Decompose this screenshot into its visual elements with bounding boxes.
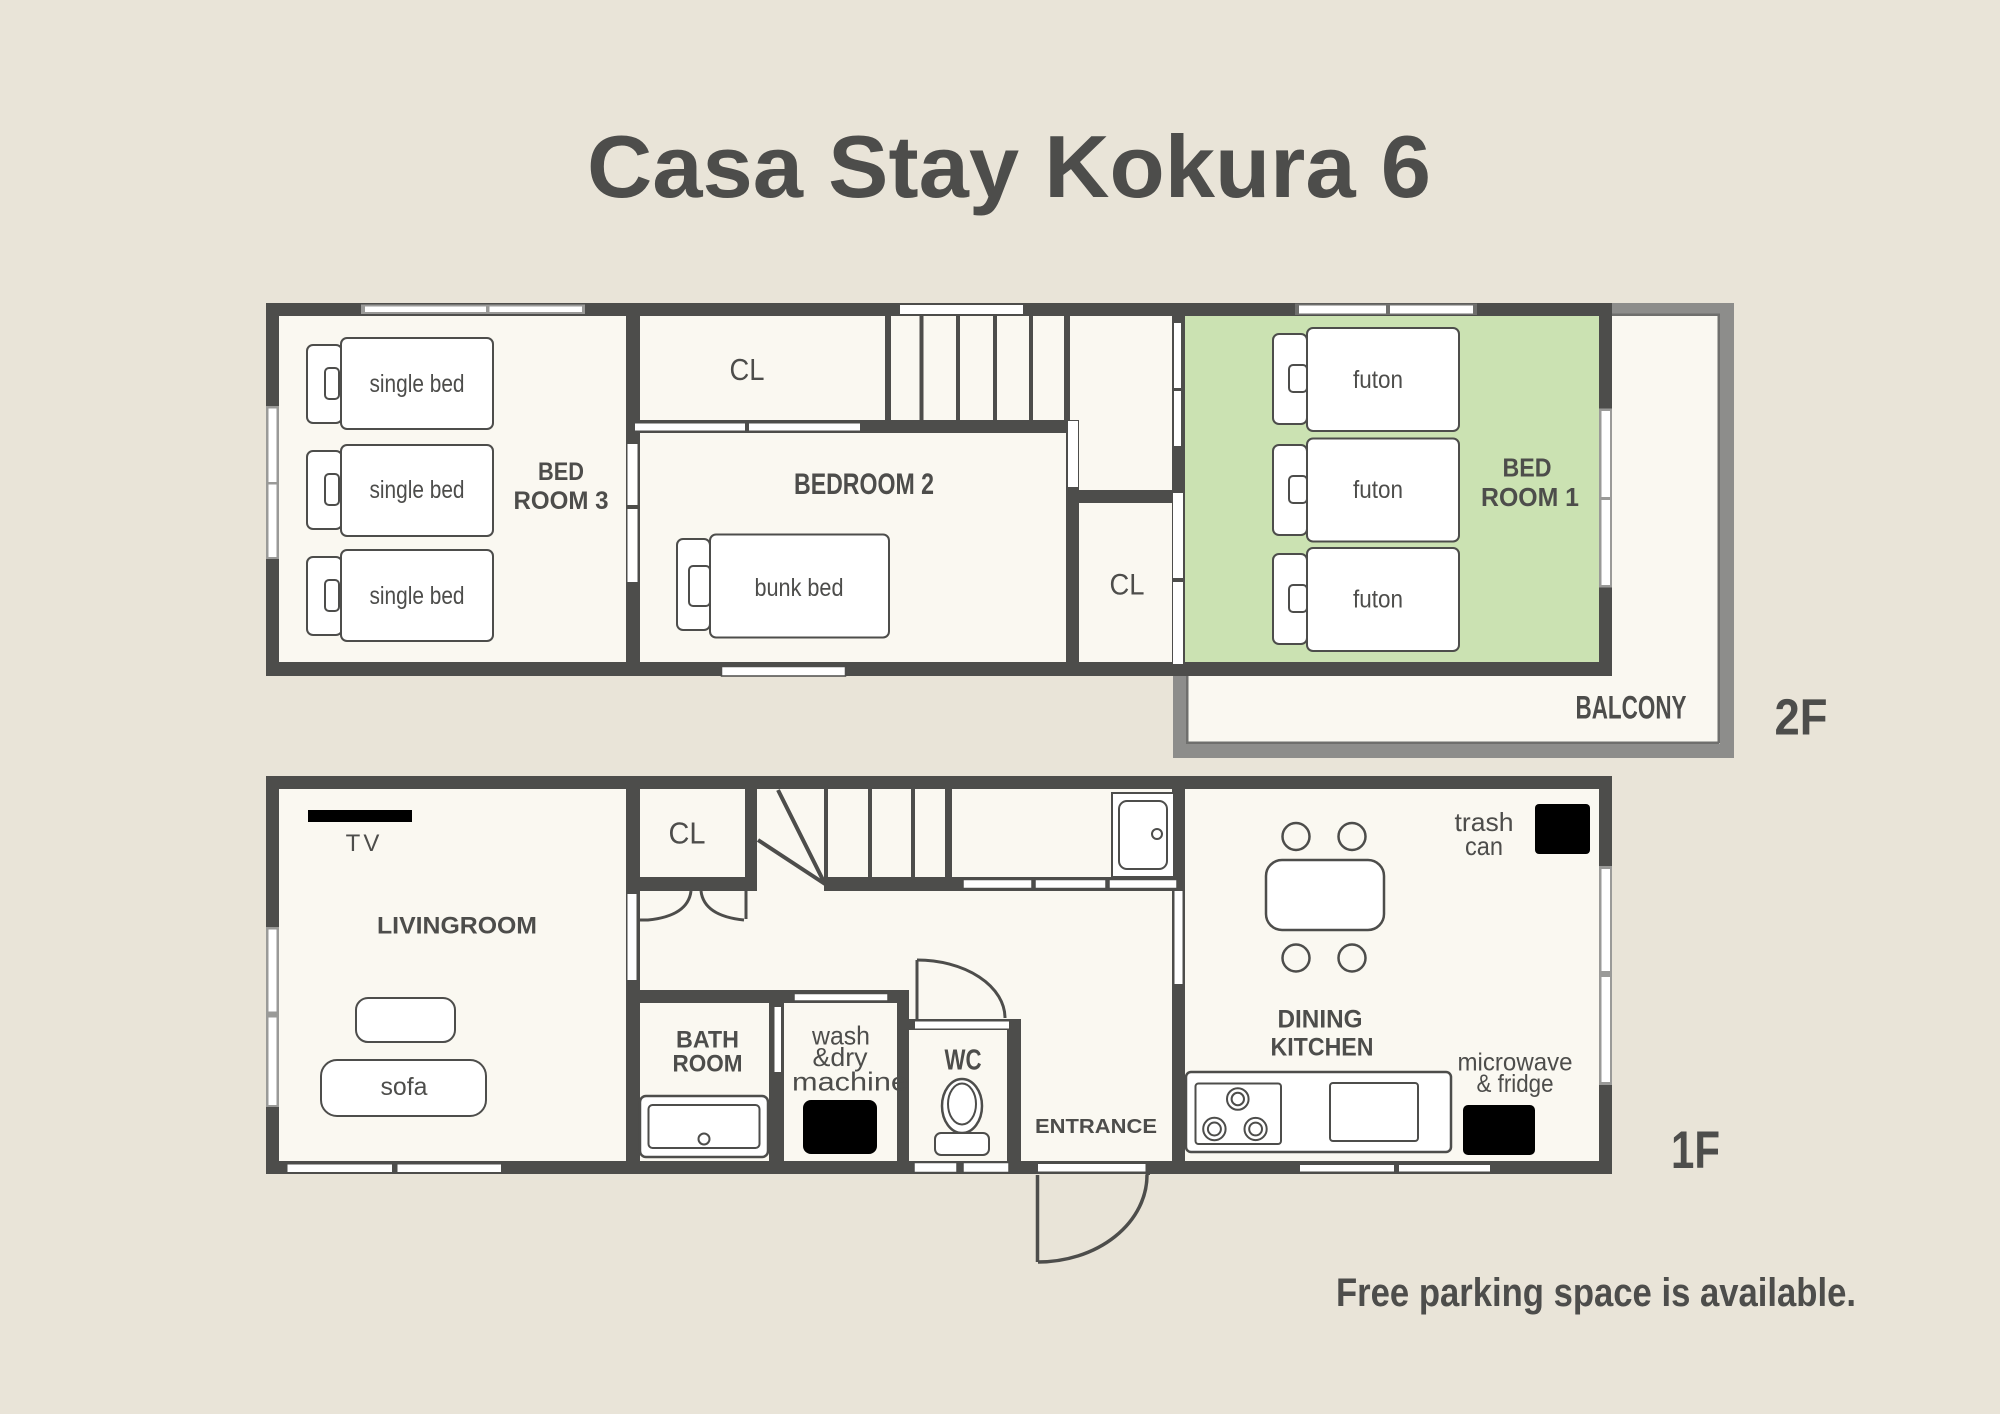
svg-text:Free parking space is availabl: Free parking space is available. xyxy=(1336,1271,1856,1315)
svg-text:ROOM 1: ROOM 1 xyxy=(1481,482,1579,512)
svg-text:ROOM: ROOM xyxy=(673,1051,743,1078)
svg-text:BATH: BATH xyxy=(676,1027,739,1054)
svg-text:can: can xyxy=(1465,831,1503,861)
svg-text:futon: futon xyxy=(1353,586,1403,614)
svg-text:DINING: DINING xyxy=(1278,1006,1363,1034)
svg-text:WC: WC xyxy=(945,1045,982,1077)
svg-text:sofa: sofa xyxy=(381,1073,428,1101)
svg-text:TV: TV xyxy=(346,830,383,857)
svg-text:BED: BED xyxy=(538,458,584,486)
svg-text:bunk bed: bunk bed xyxy=(755,574,844,602)
svg-text:2F: 2F xyxy=(1775,689,1828,746)
svg-text:futon: futon xyxy=(1353,476,1403,504)
svg-text:BEDROOM 2: BEDROOM 2 xyxy=(794,468,934,501)
svg-text:single bed: single bed xyxy=(370,582,465,610)
svg-text:single bed: single bed xyxy=(370,476,465,504)
svg-text:CL: CL xyxy=(669,816,706,851)
svg-text:CL: CL xyxy=(1110,569,1145,602)
svg-text:KITCHEN: KITCHEN xyxy=(1271,1034,1374,1062)
svg-text:machine: machine xyxy=(792,1067,908,1097)
svg-text:& fridge: & fridge xyxy=(1477,1070,1554,1098)
svg-text:futon: futon xyxy=(1353,366,1403,394)
svg-text:single bed: single bed xyxy=(370,370,465,398)
svg-text:BED: BED xyxy=(1503,453,1552,483)
svg-text:LIVINGROOM: LIVINGROOM xyxy=(377,913,537,940)
svg-text:Casa Stay Kokura 6: Casa Stay Kokura 6 xyxy=(587,117,1431,216)
svg-text:ENTRANCE: ENTRANCE xyxy=(1035,1116,1157,1138)
svg-text:BALCONY: BALCONY xyxy=(1576,690,1687,726)
svg-text:CL: CL xyxy=(730,352,765,387)
svg-text:ROOM 3: ROOM 3 xyxy=(514,487,609,515)
svg-text:1F: 1F xyxy=(1671,1121,1720,1180)
